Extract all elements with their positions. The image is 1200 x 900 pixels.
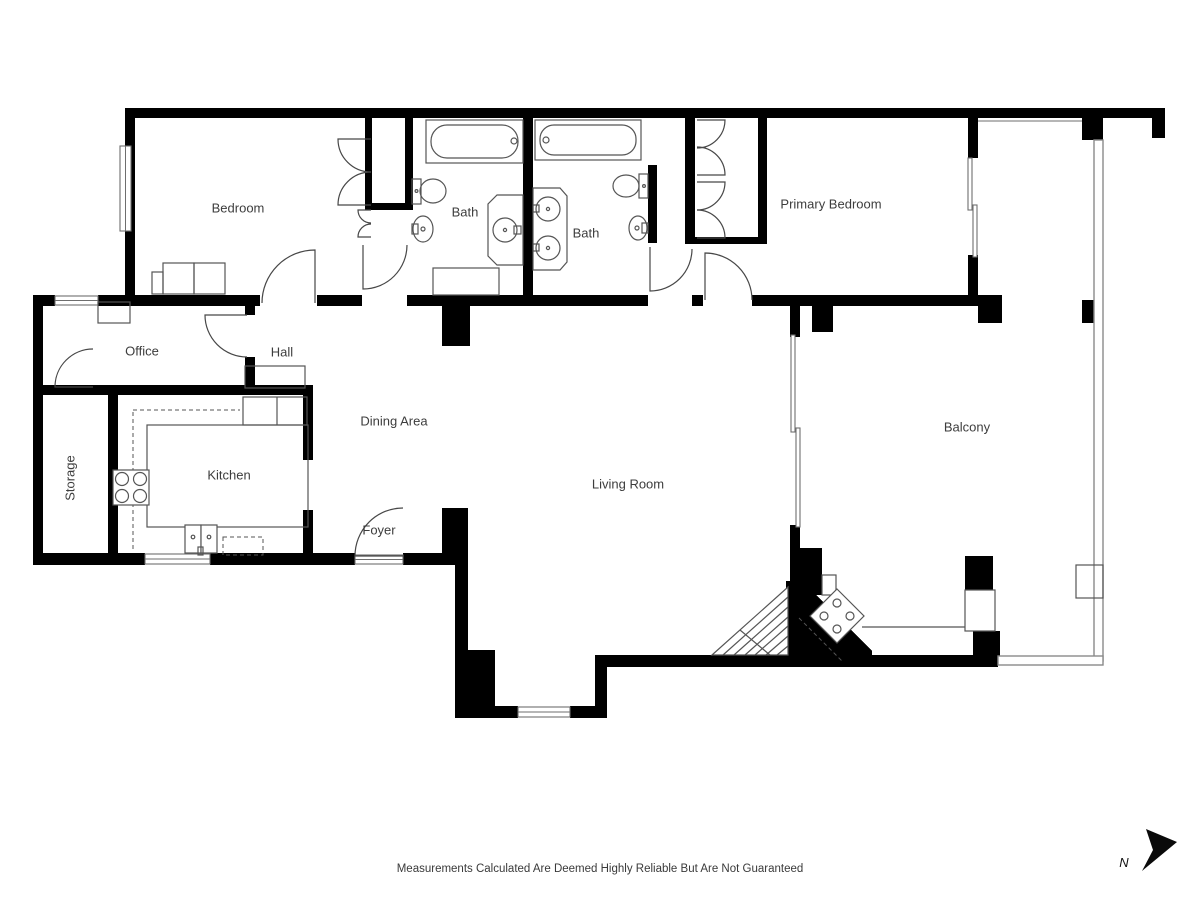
room-label-office: Office <box>125 344 159 359</box>
door-swing-bath2 <box>650 247 692 291</box>
window <box>55 296 98 305</box>
room-label-kitchen: Kitchen <box>207 468 250 483</box>
door-swing-primary <box>705 253 752 300</box>
floorplan-svg: Bedroom Bath Bath Primary Bedroom Office… <box>0 0 1200 900</box>
balcony-column <box>973 631 1000 665</box>
north-label: N <box>1119 855 1129 870</box>
closet-doors-primary <box>697 120 725 238</box>
pillar <box>978 295 1002 323</box>
window <box>518 707 570 717</box>
sliding-door <box>791 335 800 527</box>
vanity-sink-icon <box>488 195 523 265</box>
room-label-bedroom: Bedroom <box>212 201 265 216</box>
stove-icon <box>113 470 149 505</box>
sink-icon <box>412 216 433 242</box>
double-vanity-icon <box>533 188 567 270</box>
sink-icon <box>629 216 648 240</box>
sliding-door <box>968 158 977 257</box>
toilet-icon <box>412 179 446 204</box>
disclaimer-text: Measurements Calculated Are Deemed Highl… <box>397 863 804 875</box>
pillar <box>812 306 833 332</box>
door-swing-office <box>205 315 247 357</box>
bathtub-icon <box>426 120 523 163</box>
room-label-bath1: Bath <box>452 205 479 220</box>
balcony-rail <box>978 121 1103 665</box>
door-swing-bedroom <box>262 250 315 303</box>
bath-cabinet <box>433 268 499 295</box>
room-label-dining-area: Dining Area <box>360 414 428 429</box>
balcony-column <box>965 556 993 590</box>
room-label-bath2: Bath <box>573 226 600 241</box>
toilet-icon <box>613 174 648 198</box>
room-label-storage: Storage <box>63 455 78 501</box>
door-swing-storage <box>55 349 93 387</box>
room-label-foyer: Foyer <box>362 523 396 538</box>
balcony-column <box>1082 118 1103 140</box>
room-label-balcony: Balcony <box>944 420 991 435</box>
bedroom-dresser <box>152 263 225 294</box>
kitchen-sink-icon <box>185 525 217 555</box>
door-swing-bath1 <box>363 245 407 289</box>
room-label-primary-bedroom: Primary Bedroom <box>780 197 881 212</box>
room-label-hall: Hall <box>271 345 294 360</box>
bathtub-icon <box>535 120 641 160</box>
window <box>120 146 131 231</box>
north-arrow-icon: N <box>1119 829 1177 871</box>
room-label-living-room: Living Room <box>592 477 664 492</box>
pillar <box>442 306 470 346</box>
stairs-icon <box>712 587 788 655</box>
floorplan-page: Bedroom Bath Bath Primary Bedroom Office… <box>0 0 1200 900</box>
